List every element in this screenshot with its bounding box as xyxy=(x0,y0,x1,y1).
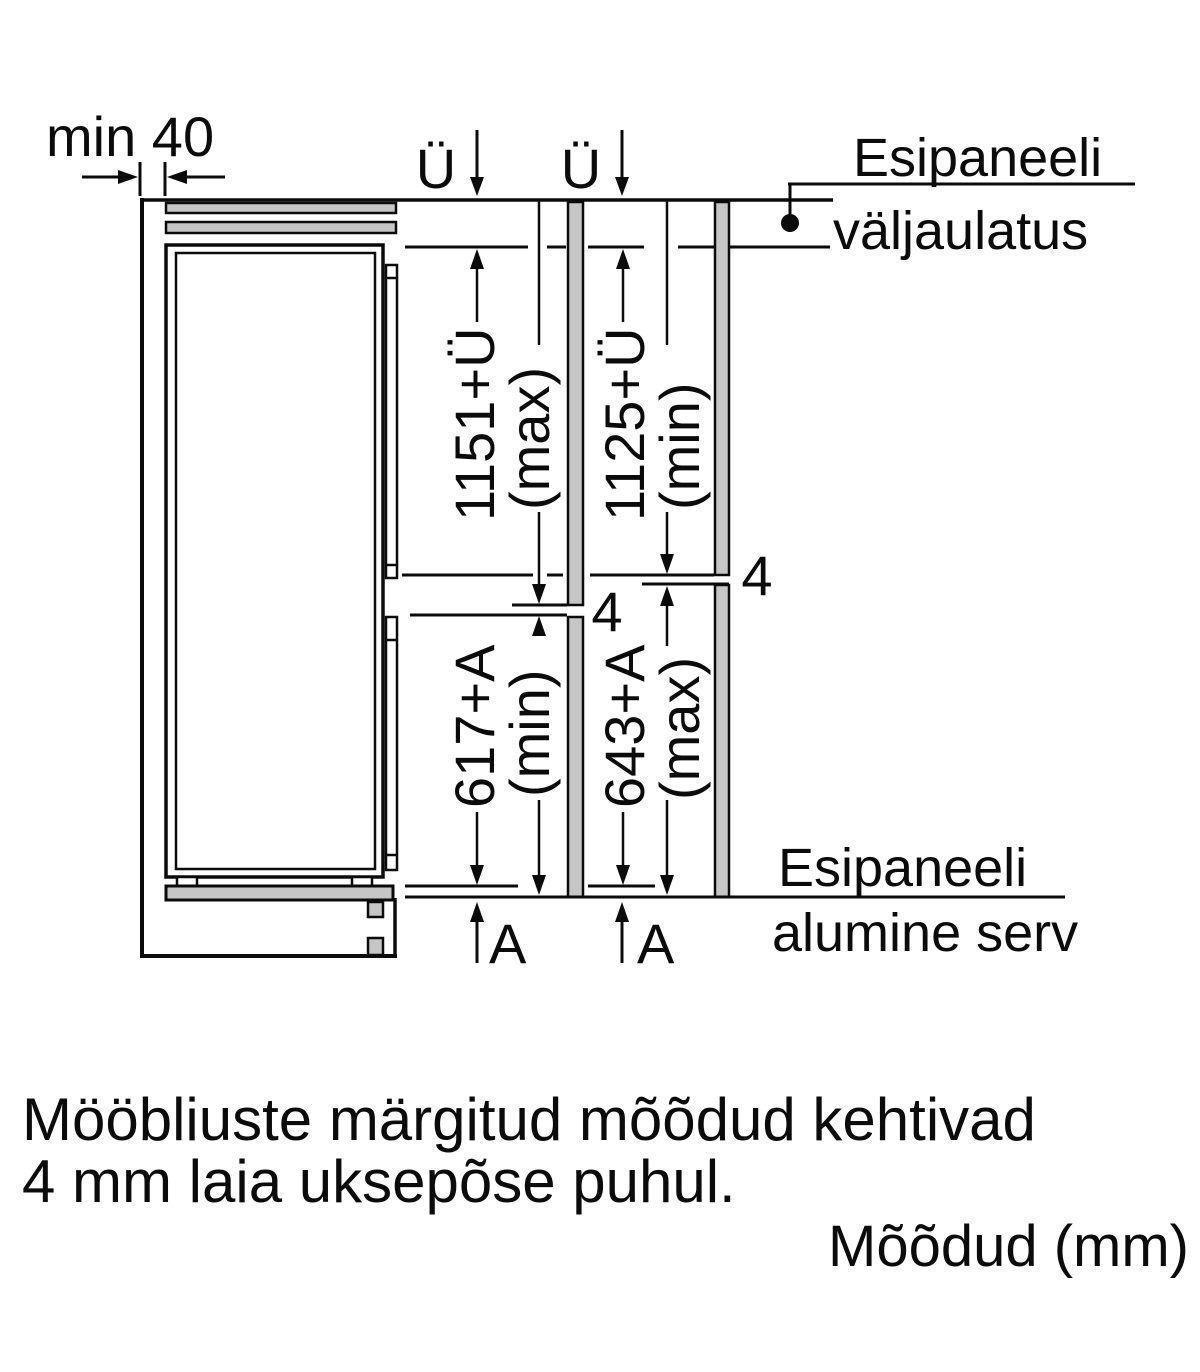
bottom-note-line1: Esipaneeli xyxy=(778,838,1027,898)
left-panel-lower xyxy=(568,617,583,897)
left-panel-upper xyxy=(568,202,583,605)
front-panel-bottom-edge-note: Esipaneeli alumine serv xyxy=(772,838,1078,963)
a-label-left: A xyxy=(489,912,527,975)
plinth-block-2 xyxy=(368,938,383,955)
arrow-down xyxy=(660,554,674,574)
top-note-line1: Esipaneeli xyxy=(853,128,1102,188)
dim-min40: min 40 xyxy=(46,105,225,196)
right-panel-lower xyxy=(715,585,729,897)
arrow-up xyxy=(660,586,674,606)
footer-note-line2: 4 mm laia uksepõse puhul. xyxy=(22,1148,736,1215)
base-vent-strip xyxy=(166,886,393,900)
min40-arrow-left-head xyxy=(118,170,138,184)
min40-label: min 40 xyxy=(46,105,214,168)
arrow-up xyxy=(616,249,630,269)
min40-arrow-right-head xyxy=(167,170,187,184)
bottom-note-line2: alumine serv xyxy=(772,903,1078,963)
footer-note-line1: Mööbliuste märgitud mõõdud kehtivad xyxy=(22,1086,1036,1153)
dim-upper-right: 1125+Ü xyxy=(593,327,656,521)
arrow-up xyxy=(532,616,546,636)
dim-lower-right-qualifier: (max) xyxy=(648,657,711,800)
arrow-down xyxy=(660,875,674,895)
arrow-down xyxy=(616,865,630,885)
ue-arrow-right-head xyxy=(615,177,629,196)
arrow-down xyxy=(532,875,546,895)
dim-upper-left: 1151+Ü xyxy=(443,327,506,521)
gap-labels: 4 4 xyxy=(591,544,772,643)
top-vent-strip-1 xyxy=(166,203,396,213)
right-panel-upper xyxy=(715,202,729,575)
installation-diagram-page: min 40 Ü Ü xyxy=(0,0,1200,1372)
a-arrow-right-head xyxy=(615,902,629,922)
appliance-lower-door xyxy=(386,617,397,870)
ue-arrow-left-head xyxy=(470,177,484,196)
footer: Mööbliuste märgitud mõõdud kehtivad 4 mm… xyxy=(22,1086,1189,1279)
top-vent-strip-2 xyxy=(166,222,396,233)
arrow-down xyxy=(470,865,484,885)
gap-label-right: 4 xyxy=(741,544,772,607)
units-label: Mõõdud (mm) xyxy=(828,1214,1189,1279)
a-arrow-left-head xyxy=(470,902,484,922)
overhang-markers-bottom: A A xyxy=(470,902,675,975)
top-note-line2: väljaulatus xyxy=(833,201,1088,261)
leader-dot xyxy=(781,214,799,232)
gap-label-left: 4 xyxy=(591,580,622,643)
dim-lower-right: 643+A xyxy=(593,644,656,808)
dim-upper-left-qualifier: (max) xyxy=(498,367,561,510)
front-panel-protrusion-note: Esipaneeli väljaulatus xyxy=(781,128,1135,261)
overhang-markers-top: Ü Ü xyxy=(416,130,629,200)
dim-upper-right-qualifier: (min) xyxy=(648,382,711,510)
dim-lower-left: 617+A xyxy=(443,644,506,808)
appliance-upper-door xyxy=(386,265,397,578)
dim-lower-left-qualifier: (min) xyxy=(498,669,561,797)
appliance-body-inner xyxy=(176,253,375,869)
arrow-down xyxy=(532,584,546,604)
plinth-block-1 xyxy=(368,902,383,917)
ue-label-left: Ü xyxy=(416,137,456,200)
ue-label-right: Ü xyxy=(561,137,601,200)
a-label-right: A xyxy=(637,912,675,975)
appliance xyxy=(166,245,397,958)
arrow-up xyxy=(470,249,484,269)
installation-diagram: min 40 Ü Ü xyxy=(0,0,1200,1372)
